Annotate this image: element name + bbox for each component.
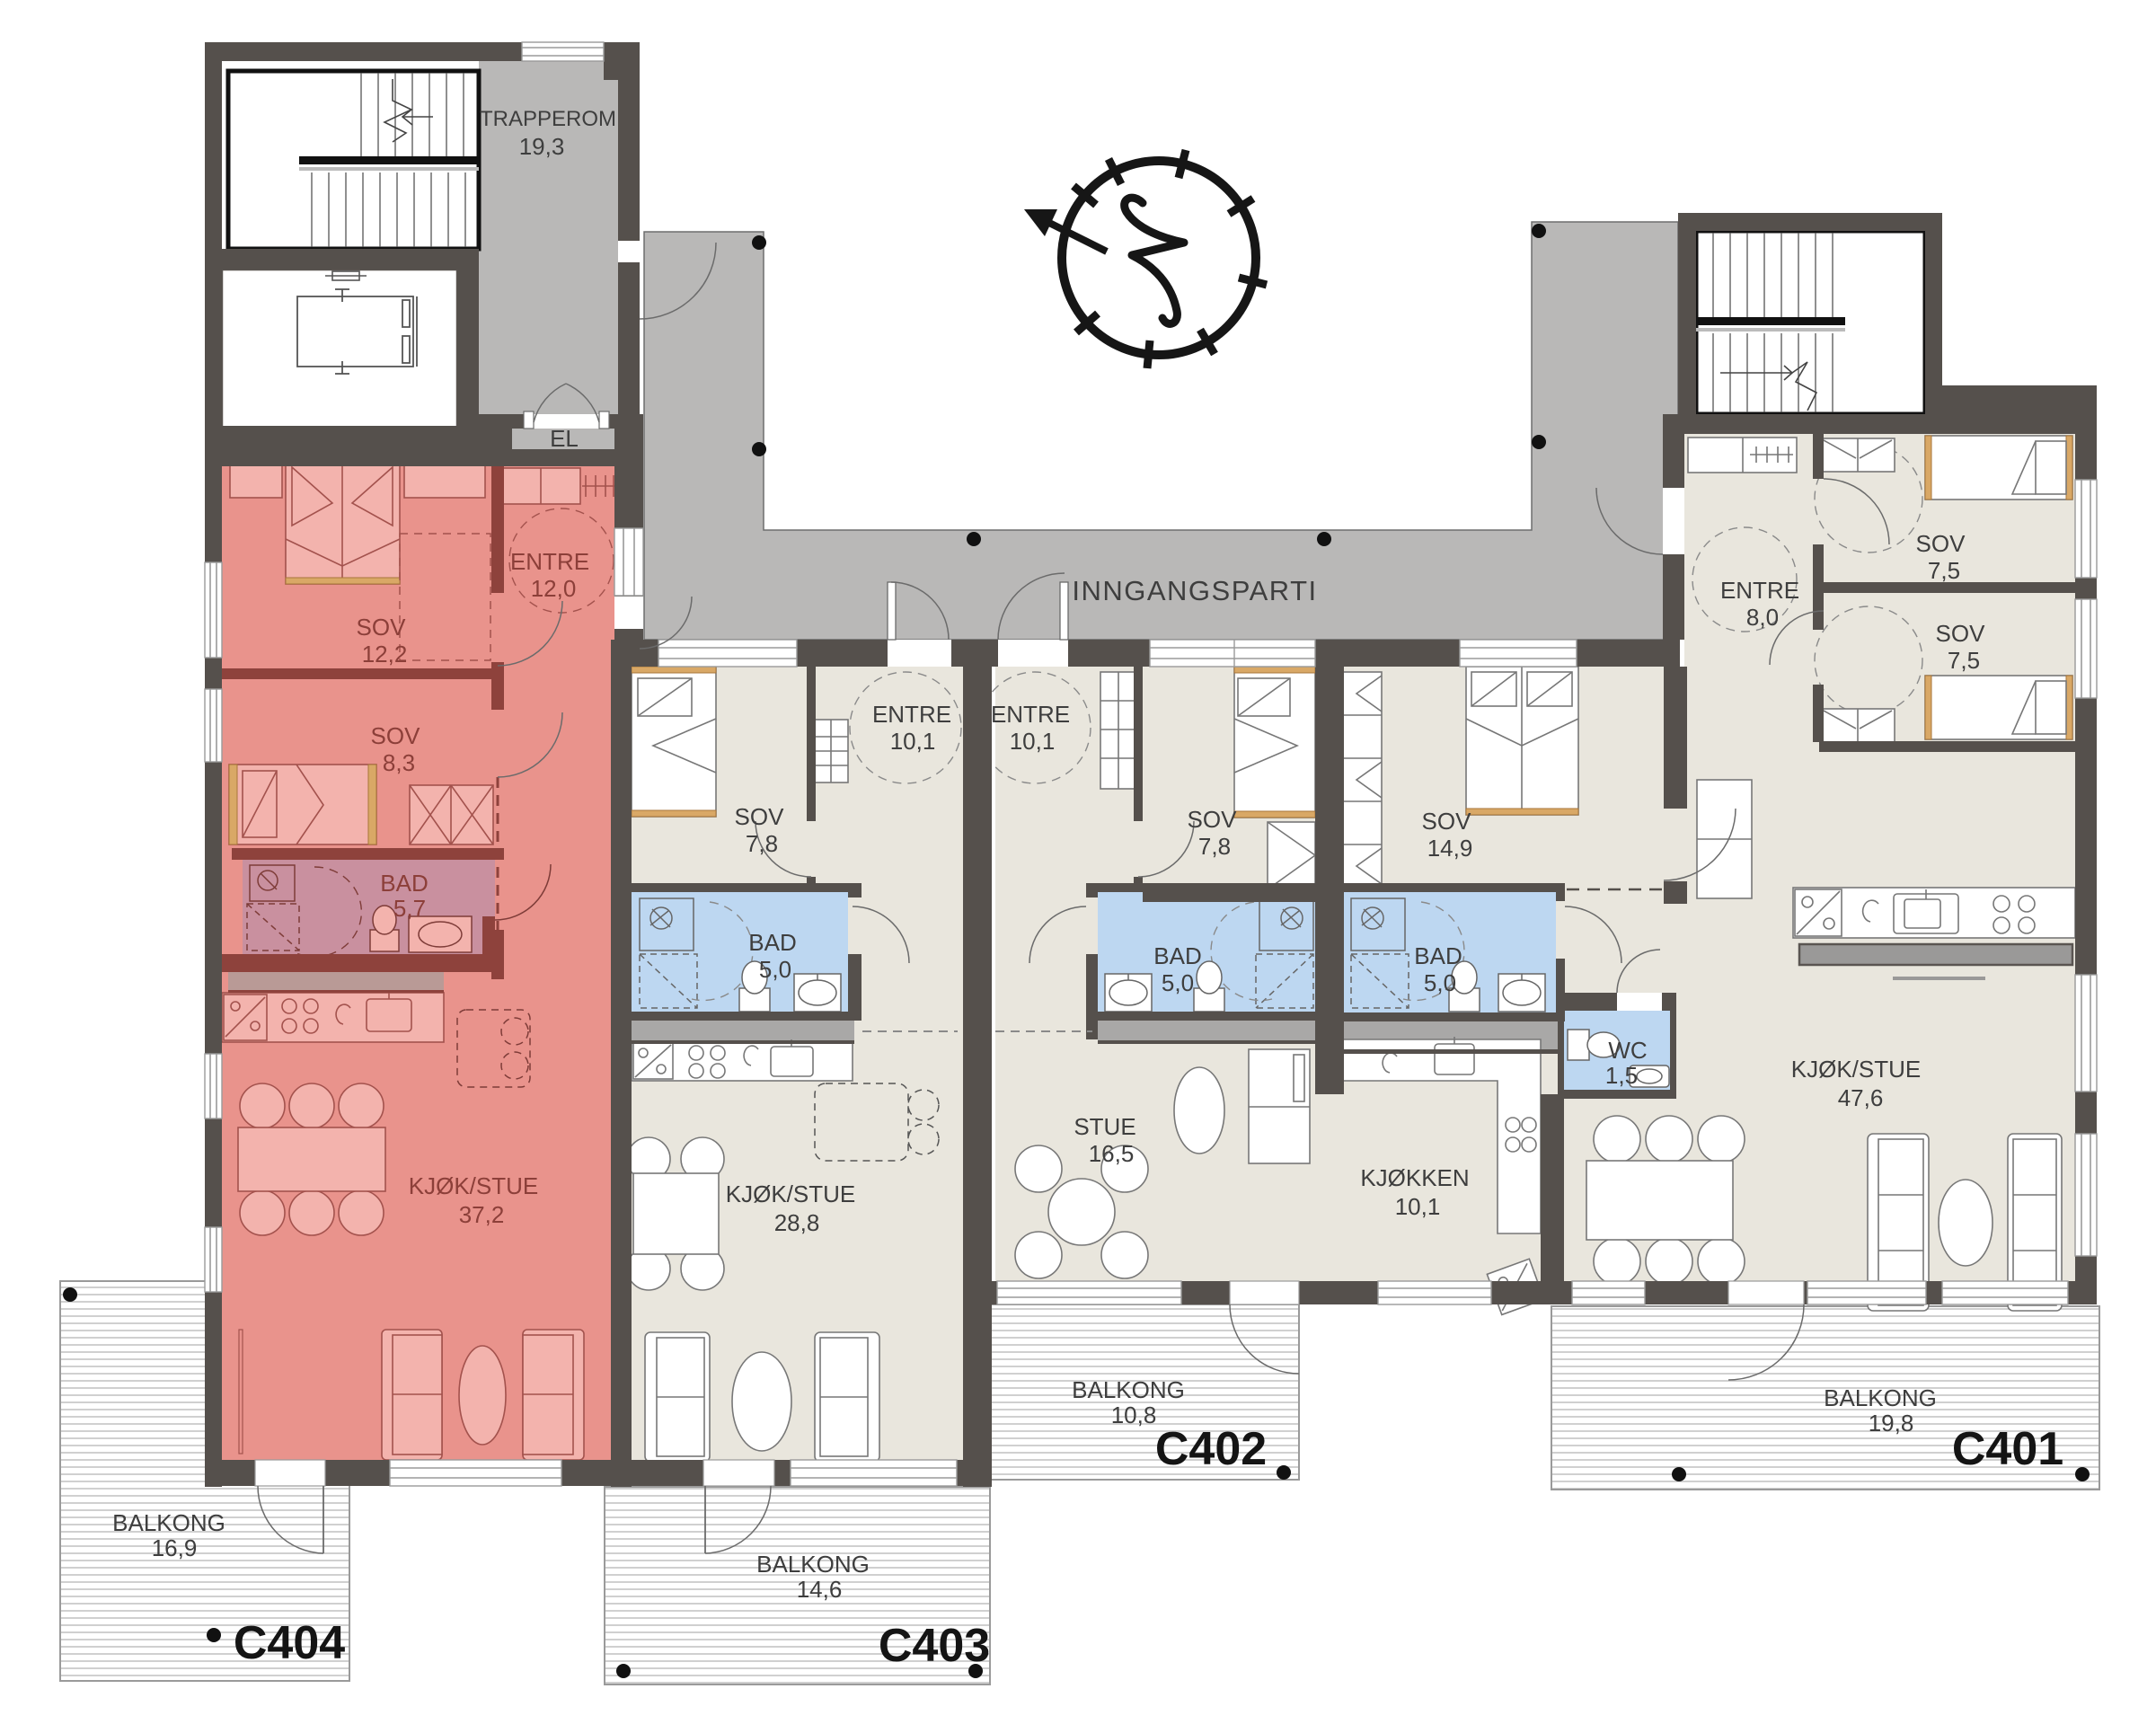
svg-text:C401: C401 — [1952, 1423, 2063, 1475]
svg-text:ENTRE: ENTRE — [991, 701, 1070, 728]
svg-text:BAD: BAD — [1414, 942, 1462, 969]
svg-text:SOV: SOV — [1188, 806, 1238, 833]
svg-text:KJØKKEN: KJØKKEN — [1360, 1164, 1469, 1191]
svg-text:8,0: 8,0 — [1746, 604, 1779, 631]
svg-text:BAD: BAD — [380, 870, 428, 897]
svg-text:SOV: SOV — [1936, 620, 1986, 647]
svg-text:KJØK/STUE: KJØK/STUE — [1791, 1056, 1921, 1083]
svg-text:C404: C404 — [234, 1617, 345, 1669]
svg-text:12,0: 12,0 — [531, 575, 577, 602]
svg-text:BALKONG: BALKONG — [1072, 1376, 1185, 1403]
svg-text:7,5: 7,5 — [1928, 557, 1960, 584]
svg-text:19,8: 19,8 — [1869, 1410, 1914, 1437]
svg-text:7,8: 7,8 — [1198, 833, 1231, 860]
svg-text:BALKONG: BALKONG — [1824, 1384, 1937, 1411]
svg-text:28,8: 28,8 — [774, 1209, 820, 1236]
svg-text:KJØK/STUE: KJØK/STUE — [409, 1172, 538, 1199]
svg-text:KJØK/STUE: KJØK/STUE — [726, 1180, 855, 1207]
svg-text:5,0: 5,0 — [1162, 969, 1194, 996]
svg-text:19,3: 19,3 — [519, 133, 565, 160]
svg-text:14,9: 14,9 — [1427, 835, 1473, 862]
svg-text:INNGANGSPARTI: INNGANGSPARTI — [1072, 575, 1317, 606]
svg-text:5,0: 5,0 — [759, 956, 791, 983]
svg-text:ENTRE: ENTRE — [1720, 577, 1799, 604]
svg-text:EL: EL — [550, 425, 579, 452]
svg-text:10,1: 10,1 — [1395, 1193, 1441, 1220]
svg-text:37,2: 37,2 — [459, 1201, 505, 1228]
svg-text:10,1: 10,1 — [890, 728, 936, 755]
svg-text:BALKONG: BALKONG — [756, 1551, 870, 1578]
svg-text:WC: WC — [1608, 1037, 1647, 1064]
svg-text:BAD: BAD — [748, 929, 796, 956]
svg-text:12,2: 12,2 — [362, 641, 408, 668]
svg-text:C402: C402 — [1155, 1423, 1267, 1475]
svg-text:SOV: SOV — [357, 614, 407, 641]
svg-text:1,5: 1,5 — [1605, 1062, 1638, 1089]
svg-text:10,8: 10,8 — [1111, 1401, 1157, 1428]
svg-text:ENTRE: ENTRE — [872, 701, 951, 728]
svg-text:14,6: 14,6 — [797, 1576, 843, 1603]
svg-text:C403: C403 — [879, 1620, 990, 1672]
svg-text:5,7: 5,7 — [393, 895, 426, 922]
svg-text:SOV: SOV — [1422, 808, 1472, 835]
svg-text:16,5: 16,5 — [1089, 1140, 1135, 1167]
svg-text:BAD: BAD — [1153, 942, 1201, 969]
svg-text:16,9: 16,9 — [152, 1534, 198, 1561]
svg-text:8,3: 8,3 — [383, 749, 415, 776]
svg-text:5,0: 5,0 — [1424, 969, 1456, 996]
svg-text:STUE: STUE — [1074, 1113, 1135, 1140]
svg-text:SOV: SOV — [1916, 530, 1966, 557]
svg-text:7,5: 7,5 — [1948, 647, 1980, 674]
svg-text:47,6: 47,6 — [1838, 1084, 1884, 1111]
svg-text:SOV: SOV — [735, 803, 785, 830]
svg-text:10,1: 10,1 — [1010, 728, 1056, 755]
svg-text:SOV: SOV — [371, 722, 421, 749]
svg-text:BALKONG: BALKONG — [112, 1509, 225, 1536]
svg-text:ENTRE: ENTRE — [510, 548, 589, 575]
svg-text:TRAPPEROM: TRAPPEROM — [480, 107, 616, 131]
svg-text:7,8: 7,8 — [746, 830, 778, 857]
